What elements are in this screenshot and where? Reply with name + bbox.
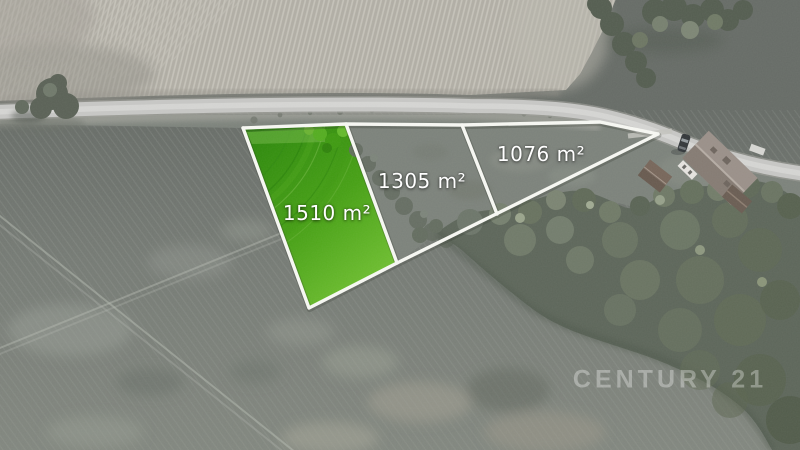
photo-grain-overlay [0,0,800,450]
aerial-photo-canvas [0,0,800,450]
aerial-parcel-photo: 1510 m² 1305 m² 1076 m² CENTURY 21 [0,0,800,450]
